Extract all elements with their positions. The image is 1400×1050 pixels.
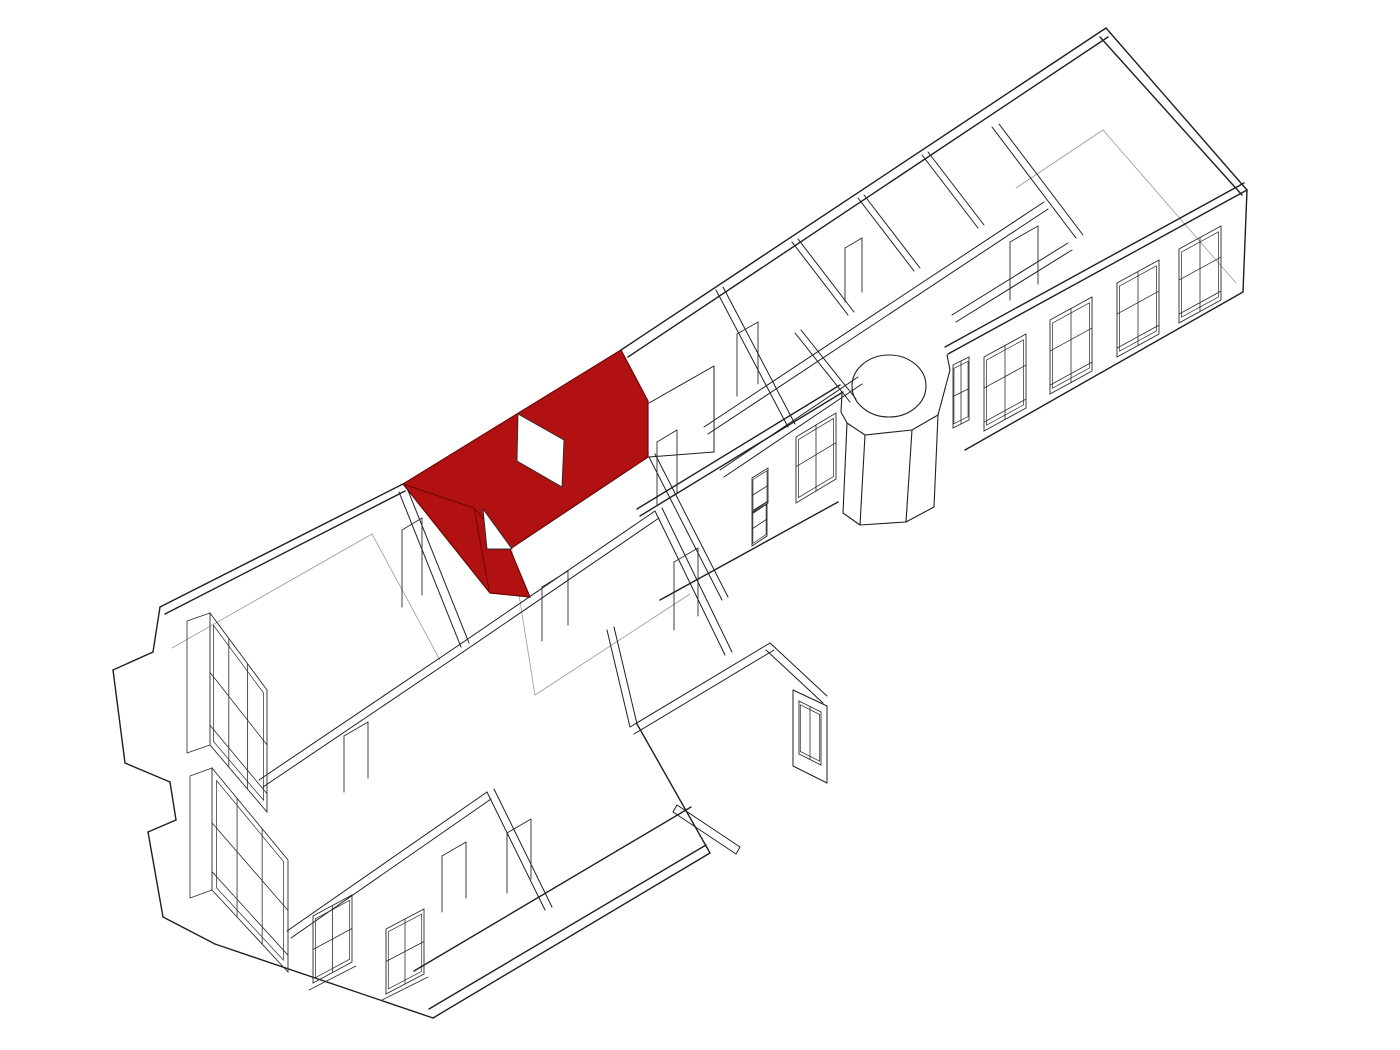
french-window-2-rail-0 — [212, 823, 288, 911]
facade-window-4 — [984, 334, 1026, 431]
door-5-edge-2 — [507, 819, 531, 833]
exterior-wall-edge-6 — [945, 183, 1244, 347]
window-detail-2 — [187, 745, 210, 753]
facade-window-3 — [1050, 297, 1092, 394]
upper-partition-1 — [708, 209, 1048, 434]
exterior-wall-edge-3 — [1243, 190, 1247, 292]
window-detail-0 — [187, 613, 210, 621]
lower-partition-15 — [634, 650, 774, 734]
door-8-edge-2 — [845, 238, 862, 248]
upper-partition-10 — [858, 198, 914, 271]
exterior-wall-edge-2 — [1106, 28, 1247, 190]
lower-partition-3 — [291, 799, 491, 938]
highlighted-room-walls — [403, 350, 648, 597]
lower-partition-24 — [673, 805, 677, 812]
upper-partition-17 — [801, 330, 856, 399]
upper-partition-6 — [992, 127, 1076, 238]
floor-line-2 — [172, 534, 372, 648]
lower-partition-8 — [487, 792, 545, 910]
door-9-edge-2 — [737, 322, 758, 334]
lower-partition-18 — [793, 690, 827, 706]
door-7 — [1010, 226, 1038, 300]
rotunda-edge-1 — [906, 430, 912, 522]
spur-window — [799, 701, 821, 765]
exterior-wall-edge-13 — [153, 607, 160, 652]
lower-partition-25 — [736, 847, 740, 854]
court-window-small-2-rail-0 — [752, 519, 767, 529]
exterior-wall-edge-1 — [160, 484, 403, 607]
door-3-edge-2 — [402, 518, 422, 530]
door-frames — [344, 226, 1038, 912]
lower-partition-9 — [494, 789, 552, 907]
rotunda-edge-0 — [934, 415, 938, 507]
lower-partition-10 — [655, 511, 725, 655]
door-10 — [542, 571, 568, 641]
rotunda-edge-2 — [860, 435, 865, 525]
court-window-medium — [796, 413, 836, 503]
lower-partition-16 — [770, 643, 827, 696]
door-10-edge-2 — [542, 571, 568, 587]
exterior-wall-edge-9 — [640, 392, 843, 516]
upper-partition-13 — [928, 152, 984, 225]
french-window-2-rail-1 — [212, 872, 288, 956]
south-window-1 — [313, 895, 352, 983]
door-4-edge-2 — [674, 548, 698, 562]
windows — [187, 226, 1221, 1000]
exterior-wall-edge-5 — [948, 190, 1247, 354]
upper-partition-15 — [723, 287, 795, 424]
lower-partition-21 — [793, 766, 827, 783]
door-2-edge-2 — [442, 842, 466, 856]
axonometric-floor-plan — [0, 0, 1400, 1050]
upper-partition-14 — [716, 290, 788, 427]
exterior-wall-edge-19 — [148, 832, 163, 917]
window-detail-5 — [190, 890, 212, 898]
lower-partition-1 — [263, 652, 463, 787]
upper-partition-9 — [798, 239, 854, 312]
french-window-2-frame — [212, 768, 288, 972]
french-window-1 — [210, 613, 267, 812]
exterior-wall-edge-15 — [113, 670, 125, 763]
exterior-wall-edge-8 — [1100, 37, 1242, 195]
lower-partition-2 — [287, 792, 487, 931]
door-7-edge-2 — [1010, 226, 1038, 242]
lower-partition-0 — [259, 645, 459, 780]
floor-lines — [172, 130, 1236, 695]
facade-window-2 — [1117, 260, 1159, 357]
upper-partition-2 — [720, 377, 858, 470]
floor-line-1 — [1016, 130, 1103, 188]
door-3 — [402, 518, 422, 607]
upper-partition-11 — [864, 195, 920, 268]
upper-partition-18 — [649, 366, 714, 403]
exterior-wall-edge-21 — [215, 944, 433, 1018]
french-window-2-inner-frame — [217, 781, 284, 961]
floor-line-5 — [535, 594, 690, 695]
upper-wing-interior-walls — [649, 124, 1083, 477]
rotunda-edge-4 — [906, 507, 934, 522]
upper-partition-0 — [704, 202, 1044, 427]
rotunda-edge-8 — [841, 394, 842, 412]
rotunda-edge-7 — [947, 355, 950, 370]
exterior-wall-edge-4 — [965, 292, 1243, 450]
lower-partition-22 — [677, 805, 740, 847]
exterior-wall-edge-18 — [148, 820, 176, 832]
upper-partition-3 — [724, 384, 862, 477]
exterior-wall-edge-20 — [163, 917, 215, 944]
exterior-wall-edge-7 — [628, 37, 1108, 357]
rotunda-edge-3 — [843, 423, 847, 513]
rotunda-circle — [852, 355, 926, 417]
french-window-2 — [212, 768, 288, 972]
court-window-small-1-rail-0 — [752, 486, 768, 496]
rotunda-bay — [841, 355, 950, 525]
upper-partition-8 — [792, 242, 848, 315]
door-6-edge-2 — [657, 430, 677, 442]
floor-plan-canvas — [0, 0, 1400, 1050]
exterior-wall-edge-16 — [125, 763, 170, 782]
french-window-1-frame — [210, 613, 267, 812]
exterior-wall-edge-23 — [429, 845, 706, 1009]
upper-partition-7 — [999, 124, 1083, 235]
upper-partition-5 — [956, 250, 1072, 322]
door-1 — [344, 722, 368, 792]
upper-partition-20 — [649, 452, 714, 457]
lower-partition-26 — [649, 457, 722, 600]
facade-window-small — [953, 357, 969, 428]
door-6 — [657, 430, 677, 505]
lower-partition-17 — [766, 650, 823, 703]
door-8 — [845, 238, 862, 302]
lower-partition-23 — [673, 812, 736, 854]
lower-partition-11 — [662, 508, 732, 652]
exterior-wall-edge-12 — [165, 491, 405, 614]
upper-partition-16 — [795, 333, 850, 402]
rotunda-edge-5 — [860, 522, 906, 525]
upper-partition-12 — [922, 155, 978, 228]
exterior-wall-edge-17 — [170, 782, 176, 820]
exterior-wall-edge-0 — [621, 28, 1106, 350]
lower-partition-14 — [630, 643, 770, 727]
exterior-wall-edge-14 — [113, 652, 153, 670]
french-window-1-rail-0 — [210, 672, 267, 745]
rotunda-edge-6 — [843, 513, 860, 525]
highlighted-room — [403, 350, 648, 597]
exterior-wall-edge-25 — [637, 724, 710, 853]
south-window-2 — [386, 909, 424, 994]
window-detail-3 — [190, 768, 212, 776]
door-4 — [674, 548, 698, 630]
floor-line-3 — [372, 534, 440, 660]
door-2 — [442, 842, 466, 912]
